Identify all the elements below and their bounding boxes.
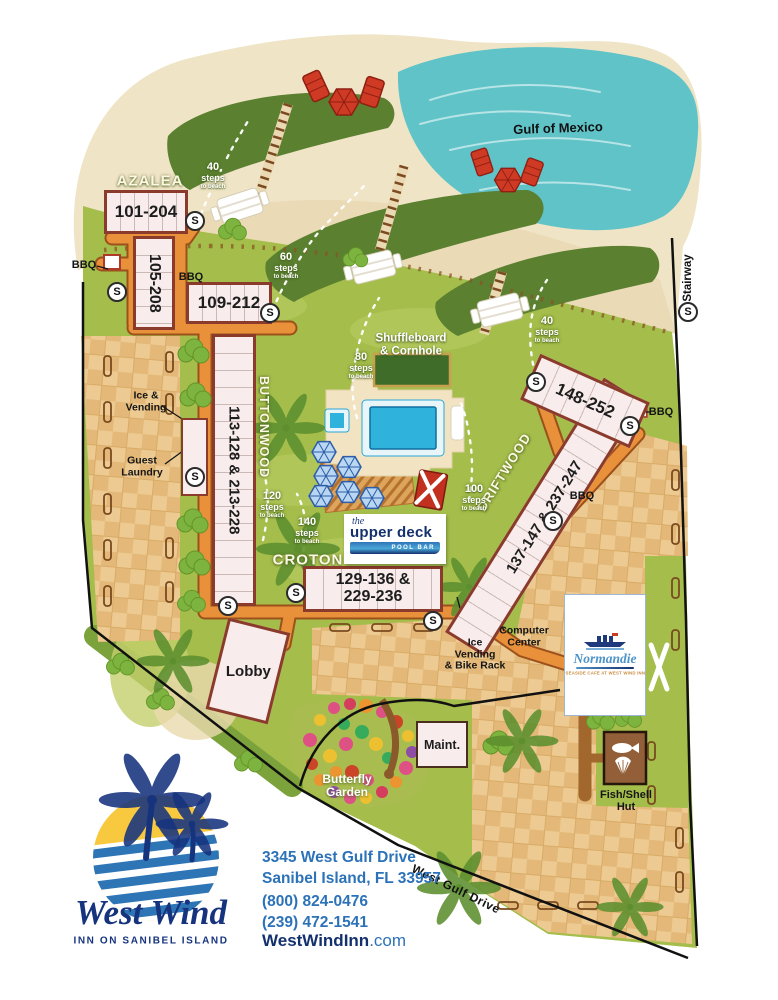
fish-hut-line2: Hut [617,801,635,813]
fish-shell-hut-icon [604,732,646,784]
building-105-208: 105-208 [133,236,175,330]
stairway-marker: S [260,303,280,323]
grill-icon [414,470,448,510]
steps-label-40-east: 40 steps to beach [535,316,560,344]
steps-count: 120 [260,491,285,502]
normandie-name: Normandie [573,652,636,666]
steps-count: 80 [349,352,374,363]
building-109-212-label: 109-212 [198,293,260,313]
phone-tollfree: (800) 824-0476 [262,893,368,910]
address-block: 3345 West Gulf Drive Sanibel Island, FL … [262,848,441,890]
bbq-label: BBQ [570,490,594,502]
website-tld: .com [369,931,406,950]
butterfly-garden-label: Butterfly Garden [322,773,371,799]
stairway-marker: S [185,467,205,487]
steps-count: 60 [274,252,299,263]
building-croton: 129-136 & 229-236 [303,566,443,612]
area-label-azalea: AZALEA [117,173,184,190]
steps-label-140: 140 steps to beach [295,517,320,545]
normandie-rule [576,667,634,669]
maintenance-building: Maint. [416,721,468,768]
steps-count: 100 [462,484,487,495]
stairway-marker: S [286,583,306,603]
stairway-marker: S [423,611,443,631]
fish-hut-line1: Fish/Shell [600,789,652,801]
upper-deck-pool-bar-logo: the upper deck POOL BAR [344,514,446,564]
phone-block: (800) 824-0476 (239) 472-1541 [262,892,368,934]
steps-word: steps [462,496,487,505]
building-croton-line2: 229-236 [344,589,403,606]
pool-bar-text: POOL BAR [391,545,435,551]
stairway-marker: S [218,596,238,616]
guest-laundry-line1: Guest [127,454,157,466]
west-wind-logo-subtitle: INN ON SANIBEL ISLAND [73,936,228,947]
steps-sub: to beach [535,338,560,344]
guest-laundry-label: Guest Laundry [121,455,162,478]
steps-label-60: 60 steps to beach [274,252,299,280]
steps-count: 40 [535,316,560,327]
ice-vending-bike-rack-label: Ice Vending & Bike Rack [445,638,506,673]
address-line1: 3345 West Gulf Drive [262,849,416,866]
computer-center-label: Computer Center [499,625,549,648]
gulf-of-mexico-label: Gulf of Mexico [513,119,603,137]
shuffleboard-court [374,354,450,386]
steps-sub: to beach [260,513,285,519]
steps-sub: to beach [295,539,320,545]
building-croton-line1: 129-136 & [336,572,411,589]
website-domain: WestWindInn [262,931,369,950]
address-line2: Sanibel Island, FL 33957 [262,870,441,887]
guest-laundry-line2: Laundry [121,466,162,478]
stairway-marker: S [620,416,640,436]
building-101-204-label: 101-204 [115,202,177,222]
stairway-marker: S [543,511,563,531]
steps-word: steps [295,529,320,538]
steps-count: 40 [201,162,226,173]
steps-label-100: 100 steps to beach [462,484,487,512]
computer-center-line1: Computer [499,624,549,636]
butterfly-line1: Butterfly [322,772,371,786]
stairway-legend-marker: S [678,302,698,322]
stairway-marker: S [107,282,127,302]
bbq-label: BBQ [179,271,203,283]
steps-count: 140 [295,517,320,528]
shuffleboard-line2: & Cornhole [380,345,442,357]
normandie-cafe-sign: Normandie SEASIDE CAFE AT WEST WIND INN [564,594,646,716]
butterfly-line2: Garden [326,785,368,799]
fish-shell-hut-label: Fish/Shell Hut [600,789,652,813]
stairway-marker: S [526,372,546,392]
phone-local: (239) 472-1541 [262,914,368,931]
website-url: WestWindInn.com [262,931,406,951]
steps-sub: to beach [349,374,374,380]
ice-vending-line1: Ice & [133,389,158,401]
steps-word: steps [260,503,285,512]
steps-sub: to beach [274,274,299,280]
steps-sub: to beach [201,184,226,190]
ice-vending-label: Ice & Vending [126,390,167,413]
building-buttonwood: 113-128 & 213-228 [212,334,256,606]
resort-map-page: Gulf of Mexico West Gulf Drive Stairway … [0,0,778,1000]
building-105-208-label: 105-208 [145,254,163,313]
building-148-252-label: 148-252 [552,379,617,423]
stairway-marker: S [185,211,205,231]
bbq-label: BBQ [72,259,96,271]
building-109-212: 109-212 [186,282,272,324]
ivb-line2: Vending [455,648,496,660]
ivb-line3: & Bike Rack [445,660,506,672]
building-101-204: 101-204 [104,190,188,234]
stairway-legend-label: Stairway [682,254,694,301]
steps-word: steps [274,264,299,273]
upper-deck-wave-bar: POOL BAR [350,542,440,554]
steps-word: steps [201,174,226,183]
west-wind-script-logo: West Wind [75,893,227,933]
shuffleboard-line1: Shuffleboard [376,332,447,344]
normandie-tagline: SEASIDE CAFE AT WEST WIND INN [565,672,645,676]
computer-center-line2: Center [507,636,540,648]
steps-word: steps [535,328,560,337]
steps-word: steps [349,364,374,373]
upper-deck-name: upper deck [350,525,440,540]
area-label-buttonwood: BUTTONWOOD [257,376,271,478]
shuffleboard-label: Shuffleboard & Cornhole [376,332,447,357]
building-buttonwood-label: 113-128 & 213-228 [226,406,243,534]
ice-vending-line2: Vending [126,401,167,413]
lobby-label: Lobby [226,663,271,680]
maintenance-label: Maint. [424,738,460,752]
bbq-label: BBQ [649,406,673,418]
steps-label-80: 80 steps to beach [349,352,374,380]
steps-label-120: 120 steps to beach [260,491,285,519]
steps-label-40-west: 40 steps to beach [201,162,226,190]
steps-sub: to beach [462,506,487,512]
ship-icon [582,633,628,650]
ivb-line1: Ice [468,637,483,649]
